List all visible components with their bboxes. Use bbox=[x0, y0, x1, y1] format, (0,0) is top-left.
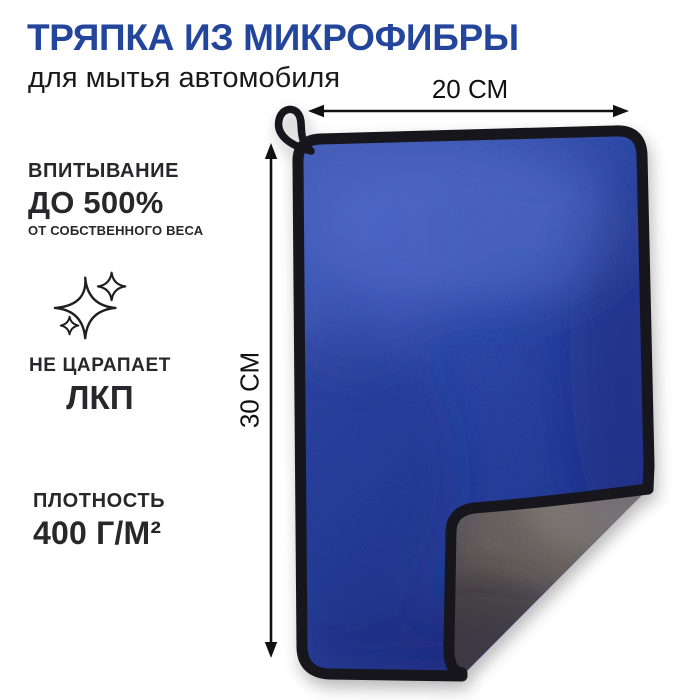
height-dimension-label: 30 СМ bbox=[235, 352, 266, 428]
arrowhead-right bbox=[613, 105, 629, 117]
arrowhead-down bbox=[265, 642, 277, 658]
height-arrow bbox=[265, 143, 277, 658]
width-dimension-label: 20 СМ bbox=[404, 74, 536, 105]
cloth-illustration bbox=[0, 0, 700, 700]
arrowhead-up bbox=[265, 143, 277, 159]
arrowhead-left bbox=[308, 105, 324, 117]
product-infographic: ТРЯПКА ИЗ МИКРОФИБРЫ для мытья автомобил… bbox=[0, 0, 700, 700]
hanging-loop bbox=[279, 109, 311, 151]
width-arrow bbox=[308, 105, 629, 117]
microfiber-cloth bbox=[235, 109, 675, 700]
